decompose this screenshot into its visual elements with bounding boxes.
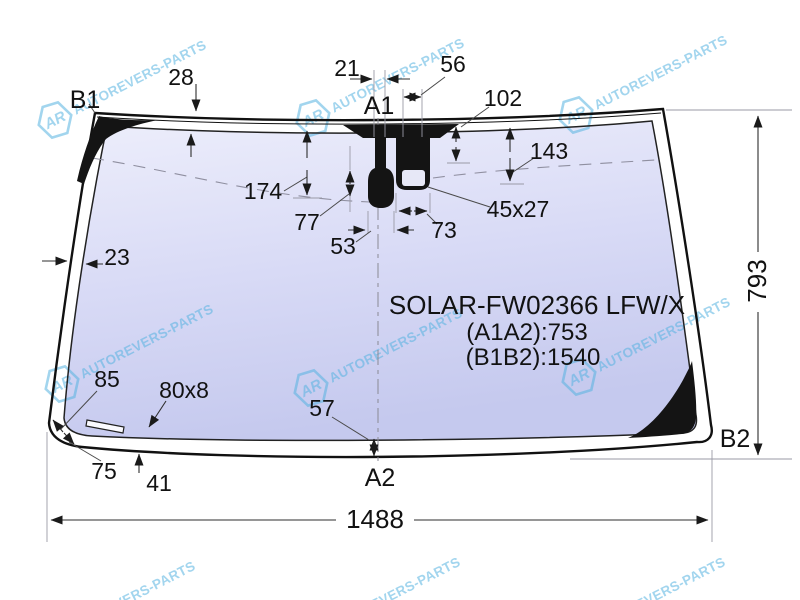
dim-corner-diag-outer: 85 xyxy=(94,366,120,392)
part-b1b2-distance: (B1B2):1540 xyxy=(466,344,601,371)
point-label-b1: B1 xyxy=(70,86,101,114)
dim-band-right: 143 xyxy=(530,138,568,164)
watermark: ARAUTOREVERS-PARTS xyxy=(18,548,203,600)
part-code: SOLAR-FW02366 LFW/X xyxy=(389,290,685,320)
camera-window xyxy=(402,170,425,186)
dim-bottom-offset: 41 xyxy=(146,470,172,496)
point-label-a2: A2 xyxy=(365,464,396,492)
dim-mirror-base-height: 77 xyxy=(294,209,320,235)
windshield-diagram-page: ARAUTOREVERS-PARTSARAUTOREVERS-PARTSARAU… xyxy=(0,0,800,600)
dim-bottom-strip: 57 xyxy=(309,395,335,421)
dim-band-center: 174 xyxy=(244,178,283,204)
dim-stalk-width: 21 xyxy=(334,55,360,81)
dim-mirror-base-width: 53 xyxy=(330,233,356,259)
dim-camera-window: 45x27 xyxy=(487,196,550,222)
dim-glass-width: 1488 xyxy=(346,504,404,534)
dim-glass-height: 793 xyxy=(742,259,772,302)
top-ceramic-band xyxy=(343,124,459,138)
dim-vin-window: 80x8 xyxy=(159,377,209,403)
watermark-brand-text: AUTOREVERS-PARTS xyxy=(325,554,463,600)
dim-corner-diag-inner: 75 xyxy=(91,458,117,484)
watermark-brand-text: AUTOREVERS-PARTS xyxy=(592,32,730,112)
dim-left-strip: 23 xyxy=(104,244,130,270)
point-label-b2: B2 xyxy=(720,425,751,453)
dim-top-strip: 28 xyxy=(168,64,194,90)
part-a1a2-distance: (A1A2):753 xyxy=(466,319,587,346)
watermark: ARAUTOREVERS-PARTS xyxy=(548,544,733,600)
point-label-a1: A1 xyxy=(364,92,395,120)
dim-bracket-top-width: 56 xyxy=(440,51,466,77)
watermark-brand-text: AUTOREVERS-PARTS xyxy=(590,554,728,600)
dim-sensor-offset: 102 xyxy=(484,85,522,111)
windshield-diagram: ARAUTOREVERS-PARTSARAUTOREVERS-PARTSARAU… xyxy=(0,0,800,600)
watermark: ARAUTOREVERS-PARTS xyxy=(283,544,468,600)
watermark-brand-text: AUTOREVERS-PARTS xyxy=(60,558,198,600)
dim-bracket-width: 73 xyxy=(431,217,457,243)
